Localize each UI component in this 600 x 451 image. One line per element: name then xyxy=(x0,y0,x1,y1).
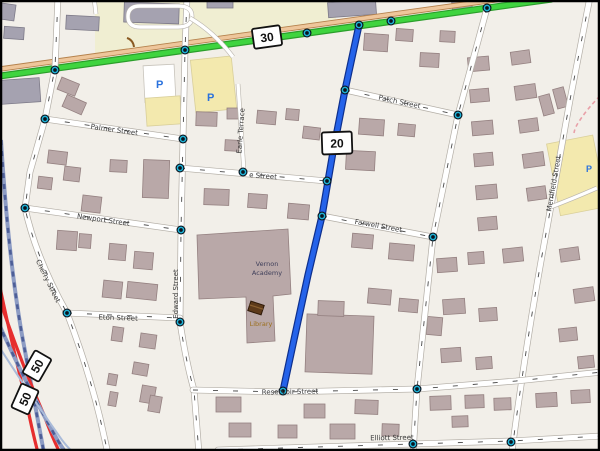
building xyxy=(305,314,374,374)
parking-icon: P xyxy=(207,92,214,104)
building xyxy=(148,395,163,413)
building xyxy=(196,112,217,127)
building xyxy=(426,316,443,335)
junction-node-icon xyxy=(483,4,492,13)
junction-node-icon xyxy=(21,204,30,213)
building xyxy=(37,176,52,190)
building xyxy=(398,123,416,136)
parking-lot xyxy=(190,56,236,113)
building xyxy=(287,203,309,220)
building xyxy=(470,88,490,103)
building xyxy=(355,400,378,415)
junction-node-icon xyxy=(63,309,72,318)
junction-node-icon xyxy=(387,17,396,26)
building xyxy=(465,395,484,409)
junction-node-icon xyxy=(51,66,60,75)
building xyxy=(229,423,251,437)
academy-label-line1: Vernon xyxy=(256,260,279,268)
building xyxy=(126,281,158,300)
building xyxy=(577,355,594,369)
building xyxy=(522,152,545,169)
building xyxy=(510,50,531,66)
junction-node-icon xyxy=(454,111,463,120)
building xyxy=(502,247,523,263)
building xyxy=(102,280,123,299)
building xyxy=(204,189,230,206)
building xyxy=(330,424,355,439)
academy-label-line2: Academy xyxy=(252,269,282,277)
building xyxy=(302,126,320,140)
building xyxy=(437,257,458,272)
building xyxy=(514,84,537,101)
building xyxy=(132,362,149,376)
street-label-elliott: Elliott Street xyxy=(370,434,414,443)
building xyxy=(452,416,468,428)
map-canvas[interactable]: Palmer Street e Street Newport Street Et… xyxy=(0,0,600,451)
street-label-eton: Eton Street xyxy=(98,313,138,322)
junction-node-icon xyxy=(303,29,312,38)
map-window: Palmer Street e Street Newport Street Et… xyxy=(0,0,600,451)
building xyxy=(440,31,456,43)
junction-node-icon xyxy=(176,164,185,173)
building xyxy=(304,404,325,418)
route-shield-30-label: 30 xyxy=(259,30,274,46)
building xyxy=(0,78,41,105)
building xyxy=(358,118,384,136)
junction-node-icon xyxy=(413,385,422,394)
route-shield-30: 30 xyxy=(252,25,283,49)
building xyxy=(107,373,118,385)
building xyxy=(573,287,595,304)
street-label-reservoir: Reservoir Street xyxy=(262,388,319,397)
building xyxy=(142,160,169,199)
building xyxy=(476,356,493,369)
building xyxy=(56,230,77,250)
building xyxy=(443,298,466,314)
building xyxy=(110,160,128,173)
building xyxy=(518,118,539,134)
junction-node-icon xyxy=(355,21,364,30)
building xyxy=(398,298,418,313)
building xyxy=(367,288,391,305)
parking-icon: P xyxy=(156,79,163,91)
junction-node-icon xyxy=(341,86,350,95)
route-shield-20-label: 20 xyxy=(330,136,344,150)
building xyxy=(468,251,485,264)
building xyxy=(474,152,494,167)
building xyxy=(139,333,157,349)
junction-node-icon xyxy=(239,168,248,177)
building xyxy=(430,396,451,411)
junction-node-icon xyxy=(318,212,327,221)
building xyxy=(558,327,577,342)
building xyxy=(526,186,547,202)
building xyxy=(571,389,591,403)
building xyxy=(479,307,498,321)
building xyxy=(285,108,299,120)
building xyxy=(63,166,81,182)
building xyxy=(79,234,92,249)
building xyxy=(388,243,414,261)
junction-node-icon xyxy=(429,233,438,242)
building xyxy=(441,347,462,362)
junction-node-icon xyxy=(507,438,516,447)
building xyxy=(47,150,67,165)
building xyxy=(475,184,497,200)
building xyxy=(216,397,241,412)
building xyxy=(559,247,580,263)
junction-node-icon xyxy=(41,115,50,124)
building xyxy=(133,251,153,270)
building xyxy=(108,243,126,260)
building xyxy=(471,120,493,136)
building xyxy=(81,195,102,213)
building xyxy=(478,216,498,231)
building xyxy=(66,15,100,31)
street-label-edward: Edward Street xyxy=(172,269,180,319)
junction-node-icon xyxy=(323,177,332,186)
building xyxy=(363,33,388,52)
building xyxy=(278,425,297,438)
building xyxy=(351,233,373,249)
junction-node-icon xyxy=(179,135,188,144)
route-shield-20: 20 xyxy=(322,131,353,154)
building xyxy=(420,53,440,68)
building xyxy=(0,3,16,21)
building xyxy=(396,28,414,41)
building xyxy=(4,26,25,39)
junction-node-icon xyxy=(181,46,190,55)
parking-lot xyxy=(145,96,182,126)
parking-icon: P xyxy=(586,164,592,174)
building xyxy=(318,301,345,317)
building xyxy=(494,398,511,411)
building xyxy=(256,110,276,125)
building xyxy=(111,326,124,341)
building xyxy=(248,193,268,208)
building xyxy=(536,392,558,407)
junction-node-icon xyxy=(177,226,186,235)
library-label: Library xyxy=(250,320,273,328)
